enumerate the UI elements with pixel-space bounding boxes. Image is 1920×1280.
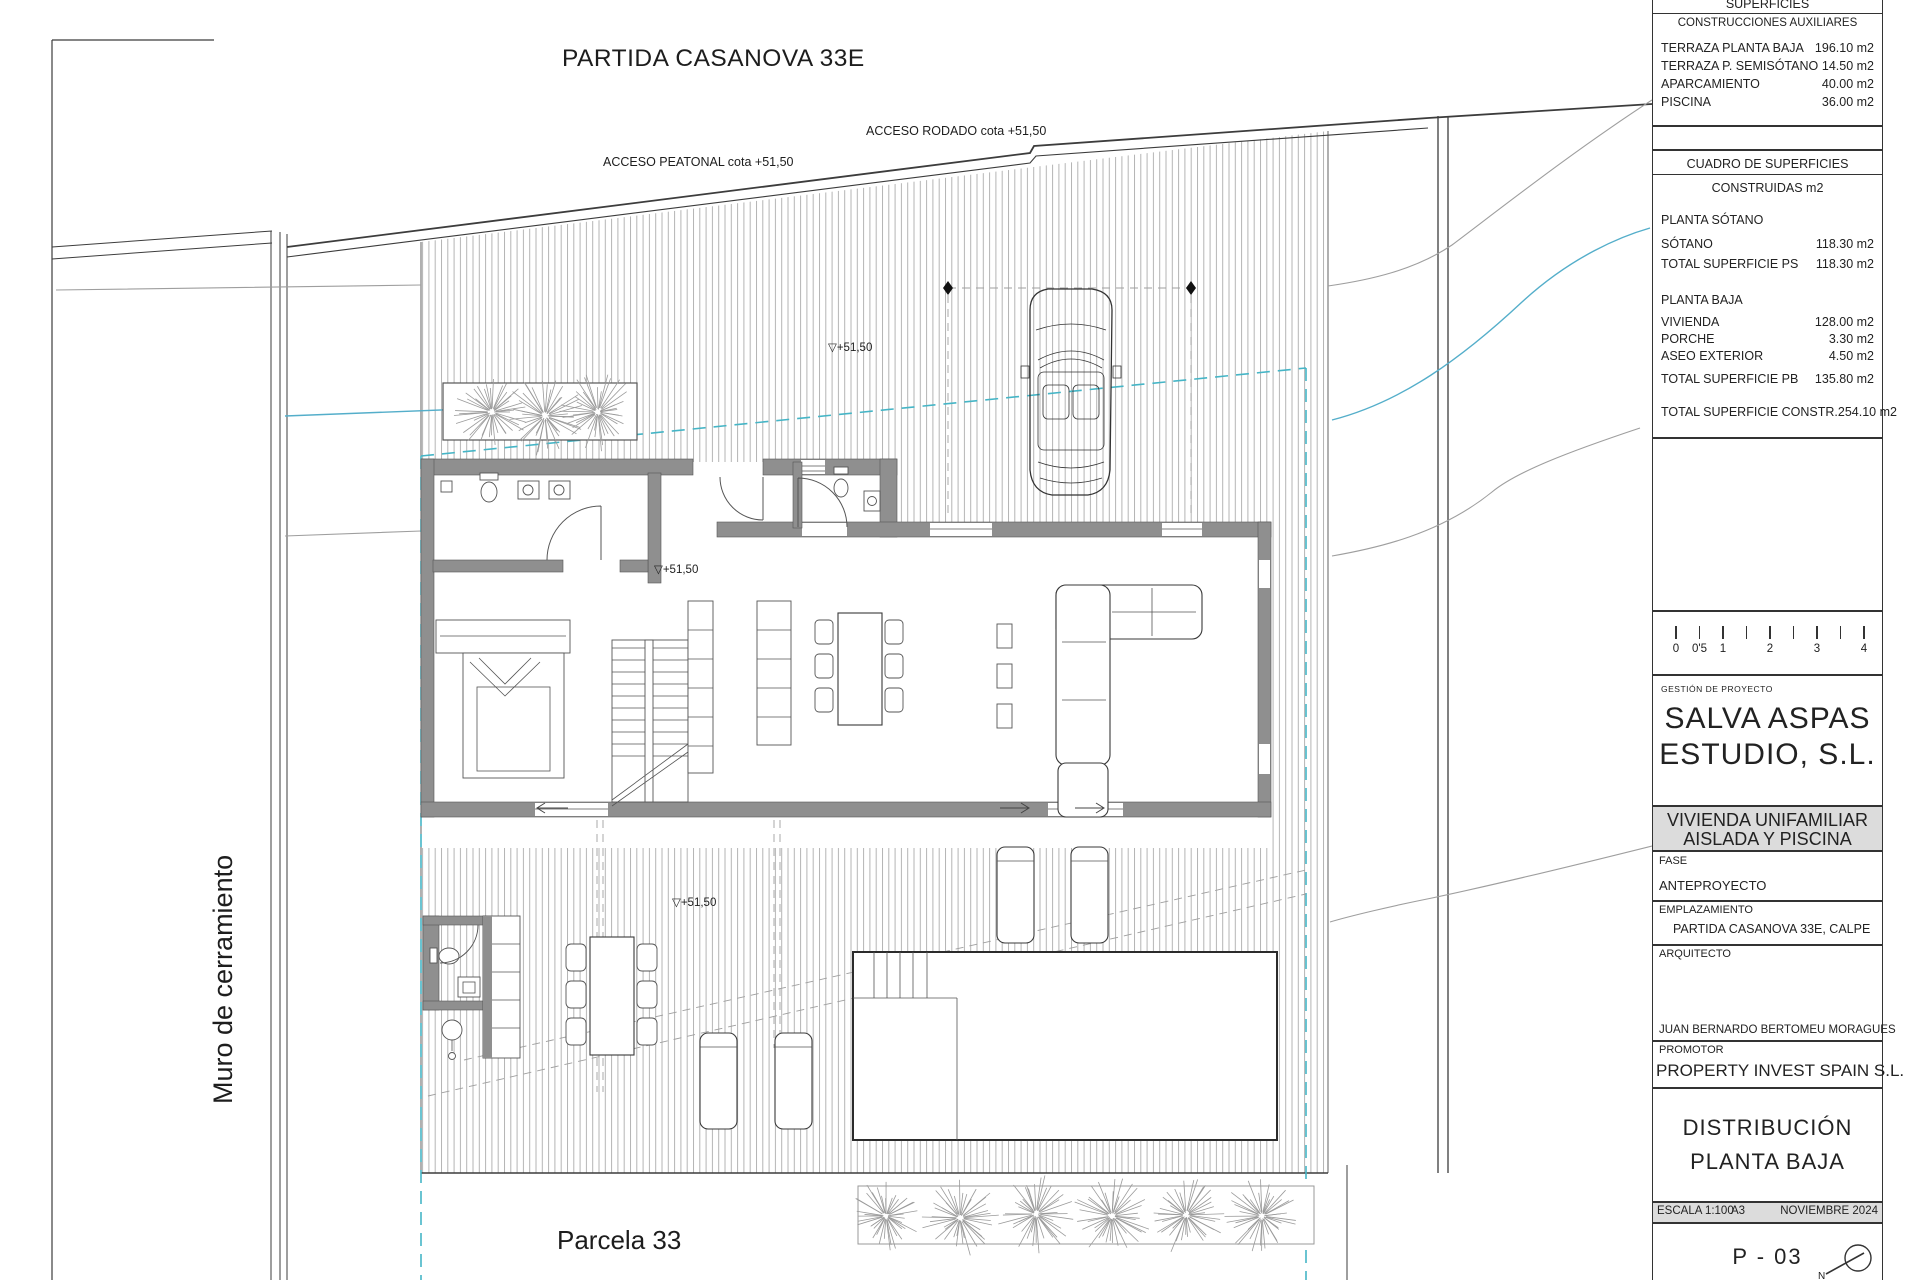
sheet-number-box: P - 03 N (1652, 1223, 1883, 1280)
project-line1: VIVIENDA UNIFAMILIAR (1653, 810, 1882, 831)
project-line2: AISLADA Y PISCINA (1653, 829, 1882, 850)
ps-row-value: 118.30 m2 (1816, 237, 1874, 251)
project-banner: VIVIENDA UNIFAMILIAR AISLADA Y PISCINA (1652, 806, 1883, 851)
emplazamiento-value: PARTIDA CASANOVA 33E, CALPE (1673, 922, 1870, 936)
sofa (1056, 585, 1202, 817)
outdoor-dining-table (566, 937, 657, 1055)
superficies-box: SUPERFICIES CONSTRUCCIONES AUXILIARES TE… (1652, 0, 1883, 126)
aux-row-label: TERRAZA PLANTA BAJA (1661, 41, 1804, 55)
scale-label: 2 (1767, 643, 1773, 655)
arquitecto-box: ARQUITECTO JUAN BERNARDO BERTOMEU MORAGU… (1652, 945, 1883, 1041)
studio-name-line1: SALVA ASPAS (1653, 702, 1882, 736)
aux-row-value: 196.10 m2 (1815, 41, 1874, 55)
aux-row-value: 14.50 m2 (1822, 59, 1874, 73)
aux-row-label: APARCAMIENTO (1661, 77, 1760, 91)
pb-row-value: 4.50 m2 (1829, 349, 1874, 363)
dining-table (815, 613, 903, 725)
emplazamiento-box: EMPLAZAMIENTO PARTIDA CASANOVA 33E, CALP… (1652, 901, 1883, 945)
scale-label: 0'5 (1692, 643, 1707, 655)
cota-terraza: ▽+51,50 (672, 897, 716, 909)
section-planta-sotano: PLANTA SÓTANO (1661, 213, 1763, 227)
cuadro-box: CUADRO DE SUPERFICIES CONSTRUIDAS m2 PLA… (1652, 150, 1883, 438)
scale-label: 0 (1673, 643, 1679, 655)
pb-row-value: 128.00 m2 (1815, 315, 1874, 329)
stairs (612, 640, 688, 806)
site-plan-drawing: PARTIDA CASANOVA 33E ACCESO RODADO cota … (0, 0, 1920, 1280)
fase-box: FASE ANTEPROYECTO (1652, 851, 1883, 901)
date-value: NOVIEMBRE 2024 (1780, 1205, 1878, 1217)
total-row-value: 254.10 m2 (1838, 405, 1897, 419)
gestion-label: GESTIÓN DE PROYECTO (1661, 684, 1773, 694)
pb-row-label: ASEO EXTERIOR (1661, 349, 1763, 363)
acceso-rodado-label: ACCESO RODADO cota +51,50 (866, 124, 1046, 138)
pb-row-label: VIVIENDA (1661, 315, 1719, 329)
plan-title: PARTIDA CASANOVA 33E (562, 45, 865, 72)
pb-row-label: TOTAL SUPERFICIE PB (1661, 372, 1798, 386)
promotor-label: PROMOTOR (1659, 1044, 1724, 1056)
cuadro-header: CUADRO DE SUPERFICIES (1653, 157, 1882, 175)
parcela-label: Parcela 33 (557, 1225, 681, 1255)
escala-band: ESCALA 1:100 A3 NOVIEMBRE 2024 (1652, 1202, 1883, 1223)
ps-row-value: 118.30 m2 (1816, 257, 1874, 271)
superficies-header: SUPERFICIES (1653, 0, 1882, 14)
section-planta-baja: PLANTA BAJA (1661, 293, 1743, 307)
arquitecto-label: ARQUITECTO (1659, 948, 1731, 960)
studio-name-line2: ESTUDIO, S.L. (1653, 738, 1882, 772)
total-row-label: TOTAL SUPERFICIE CONSTR. (1661, 405, 1838, 419)
empty-box (1652, 438, 1883, 611)
spacer-box (1652, 126, 1883, 150)
paper-size: A3 (1731, 1205, 1745, 1217)
ps-row-label: TOTAL SUPERFICIE PS (1661, 257, 1798, 271)
cuadro-subheader: CONSTRUIDAS m2 (1653, 181, 1882, 195)
sheet-title-line2: PLANTA BAJA (1653, 1149, 1882, 1175)
sheet-title-line1: DISTRIBUCIÓN (1653, 1115, 1882, 1141)
title-block: SUPERFICIES CONSTRUCCIONES AUXILIARES TE… (1652, 0, 1886, 1280)
cota-interior: ▽+51,50 (654, 564, 698, 576)
promotor-box: PROMOTOR PROPERTY INVEST SPAIN S.L. (1652, 1041, 1883, 1088)
pb-row-label: PORCHE (1661, 332, 1714, 346)
pool (853, 952, 1277, 1140)
promotor-value: PROPERTY INVEST SPAIN S.L. (1656, 1061, 1904, 1081)
ps-row-label: SÓTANO (1661, 237, 1713, 251)
scale-label: 3 (1814, 643, 1820, 655)
fase-label: FASE (1659, 855, 1687, 867)
fase-value: ANTEPROYECTO (1659, 878, 1766, 893)
aux-row-value: 36.00 m2 (1822, 95, 1874, 109)
acceso-peatonal-label: ACCESO PEATONAL cota +51,50 (603, 155, 794, 169)
north-arrow-icon: N (1814, 1234, 1880, 1280)
arquitecto-value: JUAN BERNARDO BERTOMEU MORAGUES (1659, 1024, 1896, 1036)
aux-header: CONSTRUCCIONES AUXILIARES (1653, 17, 1882, 29)
sheet-title-box: DISTRIBUCIÓN PLANTA BAJA (1652, 1088, 1883, 1202)
pb-row-value: 135.80 m2 (1815, 372, 1874, 386)
emplazamiento-label: EMPLAZAMIENTO (1659, 904, 1753, 916)
aux-row-value: 40.00 m2 (1822, 77, 1874, 91)
north-label: N (1818, 1271, 1825, 1280)
studio-box: GESTIÓN DE PROYECTO SALVA ASPAS ESTUDIO,… (1652, 675, 1883, 806)
pb-row-value: 3.30 m2 (1829, 332, 1874, 346)
cota-driveway: ▽+51,50 (828, 342, 872, 354)
scale-label: 1 (1720, 643, 1726, 655)
scale-label: 4 (1861, 643, 1867, 655)
bed (436, 620, 570, 778)
aux-row-label: TERRAZA P. SEMISÓTANO (1661, 59, 1818, 73)
aux-row-label: PISCINA (1661, 95, 1711, 109)
muro-label: Muro de cerramiento (208, 855, 238, 1104)
scalebar-box: 0 0'5 1 2 3 4 (1652, 611, 1883, 675)
escala-value: ESCALA 1:100 (1657, 1205, 1734, 1217)
